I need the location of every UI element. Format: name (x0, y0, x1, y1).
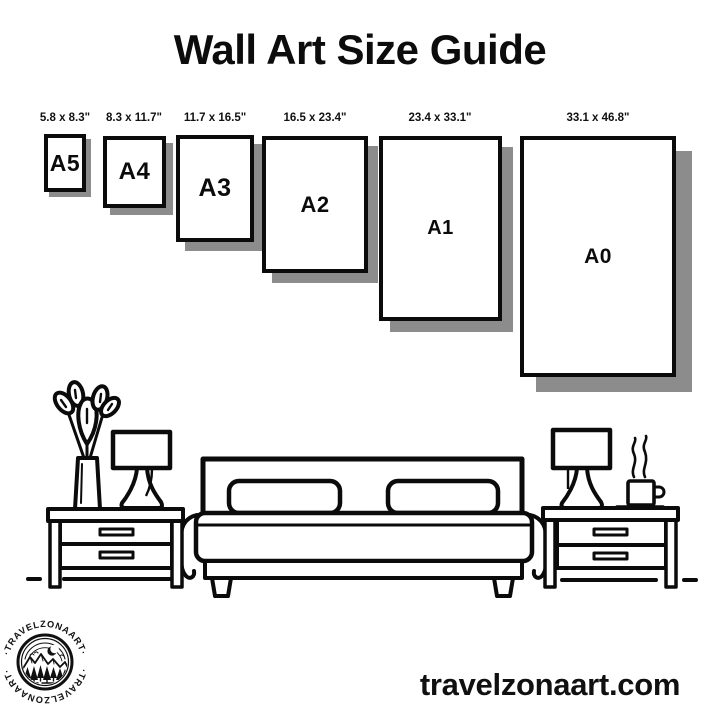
leaf (90, 385, 110, 412)
brand-logo: ·TRAVELZONAART· ·TRAVELZONAART· (0, 614, 93, 710)
nightstand-leg (545, 520, 555, 587)
blanket-drape-right (530, 515, 546, 578)
size-card-a0: A0 (520, 136, 676, 377)
size-dimensions-a2: 16.5 x 23.4" (265, 112, 365, 128)
bed-base (205, 561, 522, 578)
steam-line (633, 438, 636, 477)
poster: Wall Art Size Guide 5.8 x 8.3" 8.3 x 11.… (0, 0, 720, 720)
drawer-handle (100, 529, 133, 535)
vase (75, 458, 100, 509)
table-lamp-right (553, 430, 610, 508)
size-dimensions-a0: 33.1 x 46.8" (548, 112, 648, 128)
steam-line (644, 436, 647, 477)
moon-crescent-cut (50, 645, 59, 654)
cup-body (628, 481, 654, 505)
size-label-a3: A3 (199, 174, 232, 203)
drawer-handle (594, 529, 627, 535)
size-label-a4: A4 (119, 158, 151, 186)
coffee-cup (617, 436, 664, 507)
lamp-stem-line (146, 469, 152, 496)
logo-arc-text-top: ·TRAVELZONAART· (1, 619, 89, 656)
size-card-a3: A3 (176, 135, 254, 242)
drawer-handle (594, 553, 627, 559)
pillow-left (229, 481, 340, 513)
nightstand-leg (50, 521, 60, 587)
leaf (51, 389, 77, 417)
headboard (203, 459, 522, 516)
leaf-veins (61, 390, 112, 423)
plant-stems (68, 402, 103, 458)
cup-handle (654, 487, 664, 497)
size-card-a1: A1 (379, 136, 502, 321)
nightstand-leg (172, 521, 182, 587)
size-dimensions-a1: 23.4 x 33.1" (390, 112, 490, 128)
leaf-center (78, 399, 96, 445)
lamp-base (122, 468, 163, 508)
blanket-drape-left (181, 515, 197, 578)
website-url: travelzonaart.com (380, 667, 720, 703)
leaf (98, 395, 123, 420)
svg-text:·TRAVELZONAART·: ·TRAVELZONAART· (1, 619, 89, 656)
bed (181, 459, 546, 596)
drawer-box (60, 521, 172, 568)
size-label-a5: A5 (50, 150, 80, 177)
size-label-a1: A1 (427, 217, 454, 240)
drawer-box (557, 520, 666, 568)
lamp-shade (553, 430, 610, 468)
nightstand-top (543, 508, 678, 520)
size-dimensions-a3: 11.7 x 16.5" (165, 112, 265, 128)
floor-line (28, 579, 696, 580)
lamp-base (562, 468, 603, 508)
bed-foot-right (494, 578, 513, 596)
size-label-a0: A0 (584, 245, 612, 269)
nightstand-right (543, 508, 678, 587)
bed-foot-left (212, 578, 231, 596)
table-lamp-left (113, 432, 170, 508)
drawer-handle (100, 552, 133, 558)
pillow-right (388, 481, 498, 513)
mountains (22, 654, 69, 670)
size-card-a4: A4 (103, 136, 166, 208)
size-card-a2: A2 (262, 136, 368, 273)
aurora-arc (25, 643, 65, 659)
plant (51, 381, 122, 509)
nightstand-leg (666, 520, 676, 587)
duvet (196, 513, 532, 561)
vase-highlight (81, 464, 82, 503)
page-title: Wall Art Size Guide (0, 26, 720, 74)
leaf (67, 381, 86, 407)
lamp-shade (113, 432, 170, 468)
size-label-a2: A2 (300, 192, 329, 218)
nightstand-top (48, 509, 183, 521)
size-card-a5: A5 (44, 134, 86, 192)
nightstand-left (48, 509, 183, 587)
